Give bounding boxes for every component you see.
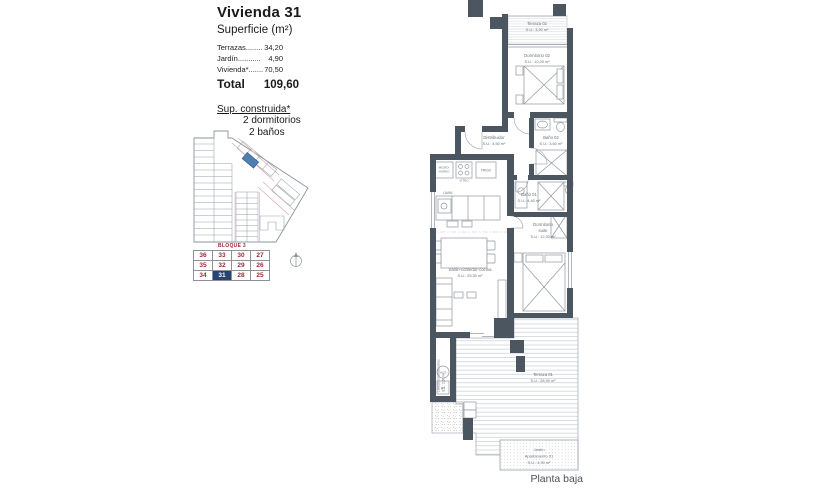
floor-plan: Terraza 02 S.U.: 3,90 m² Dormitorio 02 S… — [410, 0, 620, 492]
label-bt: BT — [441, 387, 445, 391]
label-frigo: FRIGO — [481, 169, 492, 173]
shower-icon — [536, 150, 567, 176]
room-label-terraza01: Terraza 01 — [533, 372, 553, 377]
room-label-suite2: suite — [538, 228, 548, 233]
tv-unit-icon — [498, 280, 506, 320]
label-micro2: HORNO — [439, 170, 451, 174]
surface-row: Vivienda*....... 70,50 — [217, 64, 283, 75]
room-label-jardin2: Apartamento 31 — [525, 454, 554, 459]
room-area-terraza01: S.U.: 28,90 m² — [530, 378, 556, 383]
total-value: 109,60 — [264, 79, 299, 91]
surface-row-value: 70,50 — [264, 64, 283, 75]
surface-row-value: 34,20 — [264, 42, 283, 53]
bed-icon-suite — [514, 253, 565, 311]
room-label-suite: Dormitorio — [533, 222, 553, 227]
unit-row: 34 31 28 25 — [194, 271, 270, 281]
label-vitro: VITRO — [459, 179, 469, 183]
total-label: Total — [217, 77, 245, 91]
unit-cell[interactable]: 25 — [251, 271, 270, 281]
surface-row-label: Jardín........... — [217, 53, 261, 64]
unit-cell[interactable]: 32 — [213, 261, 232, 271]
surface-row: Jardín........... 4,90 — [217, 53, 283, 64]
bed-icon-dorm02 — [516, 66, 564, 104]
site-building — [260, 216, 284, 230]
unit-cell[interactable]: 33 — [213, 251, 232, 261]
surface-subtitle: Superficie (m²) — [217, 24, 387, 36]
room-area-bano02: S.U.: 3,60 m² — [540, 141, 564, 146]
unit-cell[interactable]: 35 — [194, 261, 213, 271]
room-label-salon: Salón-comedor-cocina — [449, 267, 493, 272]
cooktop-icon — [456, 162, 472, 178]
label-lavav: LAVAV. — [443, 191, 453, 195]
compass-icon — [291, 252, 302, 267]
room-label-jardin: Jardín — [533, 447, 544, 452]
unit-cell[interactable]: 29 — [232, 261, 251, 271]
built-heading: Sup. construida* — [217, 104, 387, 115]
room-area-distribuidor: S.U.: 4,50 m² — [483, 141, 507, 146]
unit-row: 35 32 29 26 — [194, 261, 270, 271]
unit-row: 36 33 30 27 — [194, 251, 270, 261]
room-area-dorm02: S.U.: 10,00 m² — [524, 59, 550, 64]
room-area-bano01: S.U.: 4,40 m² — [518, 198, 542, 203]
room-area-jardin: S.U.: 4,90 m² — [528, 460, 552, 465]
feature-bedrooms: 2 dormitorios — [243, 115, 387, 127]
site-center-lots — [235, 192, 260, 242]
surface-rows: Terrazas........ 34,20 Jardín...........… — [217, 42, 387, 75]
unit-cell[interactable]: 26 — [251, 261, 270, 271]
room-label-bano01: Baño 01 — [521, 192, 537, 197]
surface-row-label: Vivienda*....... — [217, 64, 263, 75]
page-title: Vivienda 31 — [217, 4, 387, 21]
room-label-distribuidor: Distribuidor — [483, 135, 505, 140]
site-lot-grid — [194, 138, 232, 242]
toilet-icon — [557, 123, 565, 132]
room-area-suite: S.U.: 12,00 m² — [530, 234, 556, 239]
floorplan-sheet: Vivienda 31 Superficie (m²) Terrazas....… — [0, 0, 819, 492]
block-label: BLOQUE 3 — [193, 243, 271, 250]
unit-cell[interactable]: 28 — [232, 271, 251, 281]
room-area-salon: S.U.: 25,50 m² — [457, 273, 483, 278]
bathroom-02-fixtures — [535, 118, 567, 176]
label-acs: ACS — [440, 371, 446, 375]
total-row: Total 109,60 — [217, 77, 299, 91]
legend: Vivienda 31 Superficie (m²) Terrazas....… — [217, 4, 387, 139]
sofa-icon — [436, 278, 452, 326]
shower-icon — [538, 182, 564, 210]
room-area-terraza02: S.U.: 3,90 m² — [526, 27, 550, 32]
unit-cell[interactable]: 36 — [194, 251, 213, 261]
unit-table: BLOQUE 3 36 33 30 27 35 32 29 26 34 31 2… — [193, 243, 271, 281]
surface-row-value: 4,90 — [268, 53, 283, 64]
plan-caption: Planta baja — [530, 473, 583, 485]
kitchen-island — [436, 196, 500, 227]
unit-cell[interactable]: 30 — [232, 251, 251, 261]
unit-cell-highlighted[interactable]: 31 — [213, 271, 232, 281]
room-label-dorm02: Dormitorio 02 — [524, 53, 550, 58]
unit-cell[interactable]: 34 — [194, 271, 213, 281]
room-label-terraza02: Terraza 02 — [527, 21, 547, 26]
surface-row: Terrazas........ 34,20 — [217, 42, 283, 53]
unit-cell[interactable]: 27 — [251, 251, 270, 261]
surface-row-label: Terrazas........ — [217, 42, 262, 53]
room-label-bano02: Baño 02 — [543, 135, 559, 140]
